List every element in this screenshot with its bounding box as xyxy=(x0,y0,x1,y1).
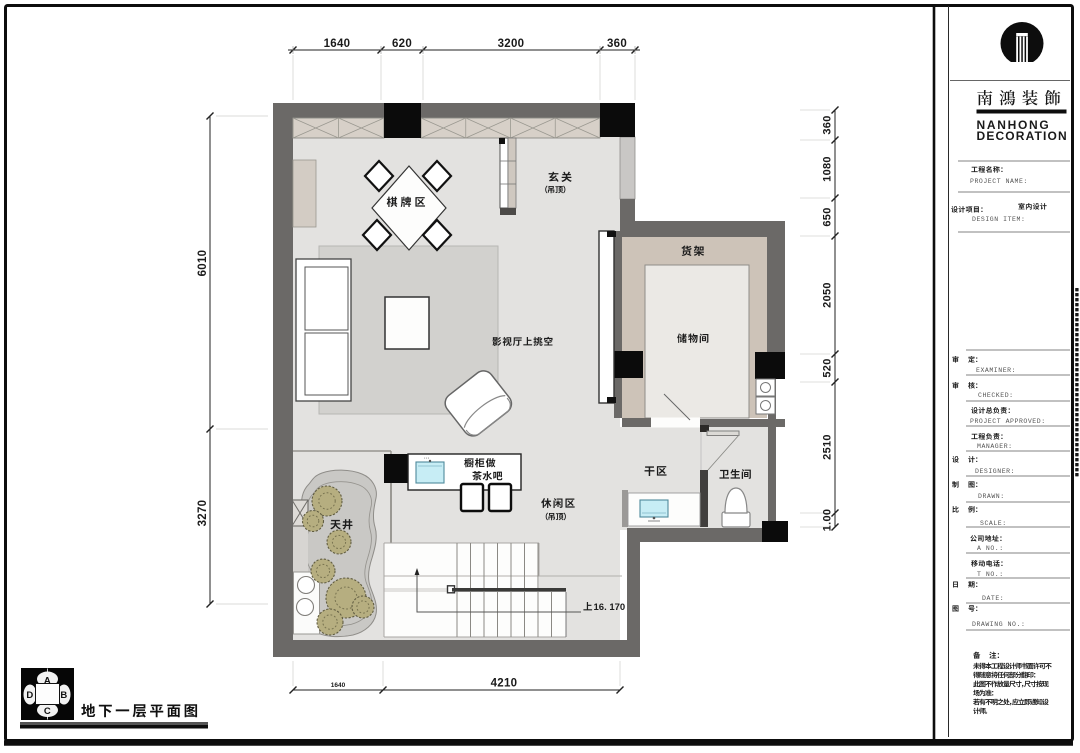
svg-text:DRAWN:: DRAWN: xyxy=(978,493,1005,500)
svg-text:PROJECT NAME:: PROJECT NAME: xyxy=(970,178,1028,185)
svg-text:1640: 1640 xyxy=(324,38,351,50)
svg-text:360: 360 xyxy=(607,38,627,50)
svg-text:620: 620 xyxy=(392,38,412,50)
svg-text:MANAGER:: MANAGER: xyxy=(977,443,1013,450)
svg-text:3200: 3200 xyxy=(498,38,525,50)
svg-text:CHECKED:: CHECKED: xyxy=(978,392,1014,399)
svg-text:DESIGN ITEM:: DESIGN ITEM: xyxy=(972,216,1025,223)
svg-text:4210: 4210 xyxy=(491,678,518,690)
svg-text:SCALE:: SCALE: xyxy=(980,520,1007,527)
svg-text:T NO.:: T NO.: xyxy=(977,571,1004,578)
svg-text:16. 170: 16. 170 xyxy=(594,602,626,613)
svg-text:B: B xyxy=(60,690,67,701)
svg-text:A NO.:: A NO.: xyxy=(977,545,1004,552)
svg-text:1640: 1640 xyxy=(331,682,346,689)
svg-text:DECORATION: DECORATION xyxy=(977,129,1068,143)
svg-text:360: 360 xyxy=(822,115,834,134)
svg-text:DRAWING NO.:: DRAWING NO.: xyxy=(972,621,1025,628)
svg-text:2050: 2050 xyxy=(822,282,834,308)
svg-text:···: ··· xyxy=(424,456,430,462)
svg-text:A: A xyxy=(44,676,51,687)
svg-text:2510: 2510 xyxy=(822,434,834,460)
svg-text:PROJECT APPROVED:: PROJECT APPROVED: xyxy=(970,418,1046,425)
svg-text:D: D xyxy=(26,690,33,701)
svg-text:DATE:: DATE: xyxy=(982,595,1004,602)
svg-text:1080: 1080 xyxy=(822,156,834,182)
svg-text:3270: 3270 xyxy=(197,500,209,527)
svg-text:EXAMINER:: EXAMINER: xyxy=(976,367,1016,374)
svg-text:650: 650 xyxy=(822,207,834,226)
svg-text:1.00: 1.00 xyxy=(822,509,834,532)
svg-text:6010: 6010 xyxy=(197,250,209,277)
svg-text:DESIGNER:: DESIGNER: xyxy=(975,468,1015,475)
svg-text:520: 520 xyxy=(822,358,834,377)
svg-text:C: C xyxy=(44,706,51,717)
